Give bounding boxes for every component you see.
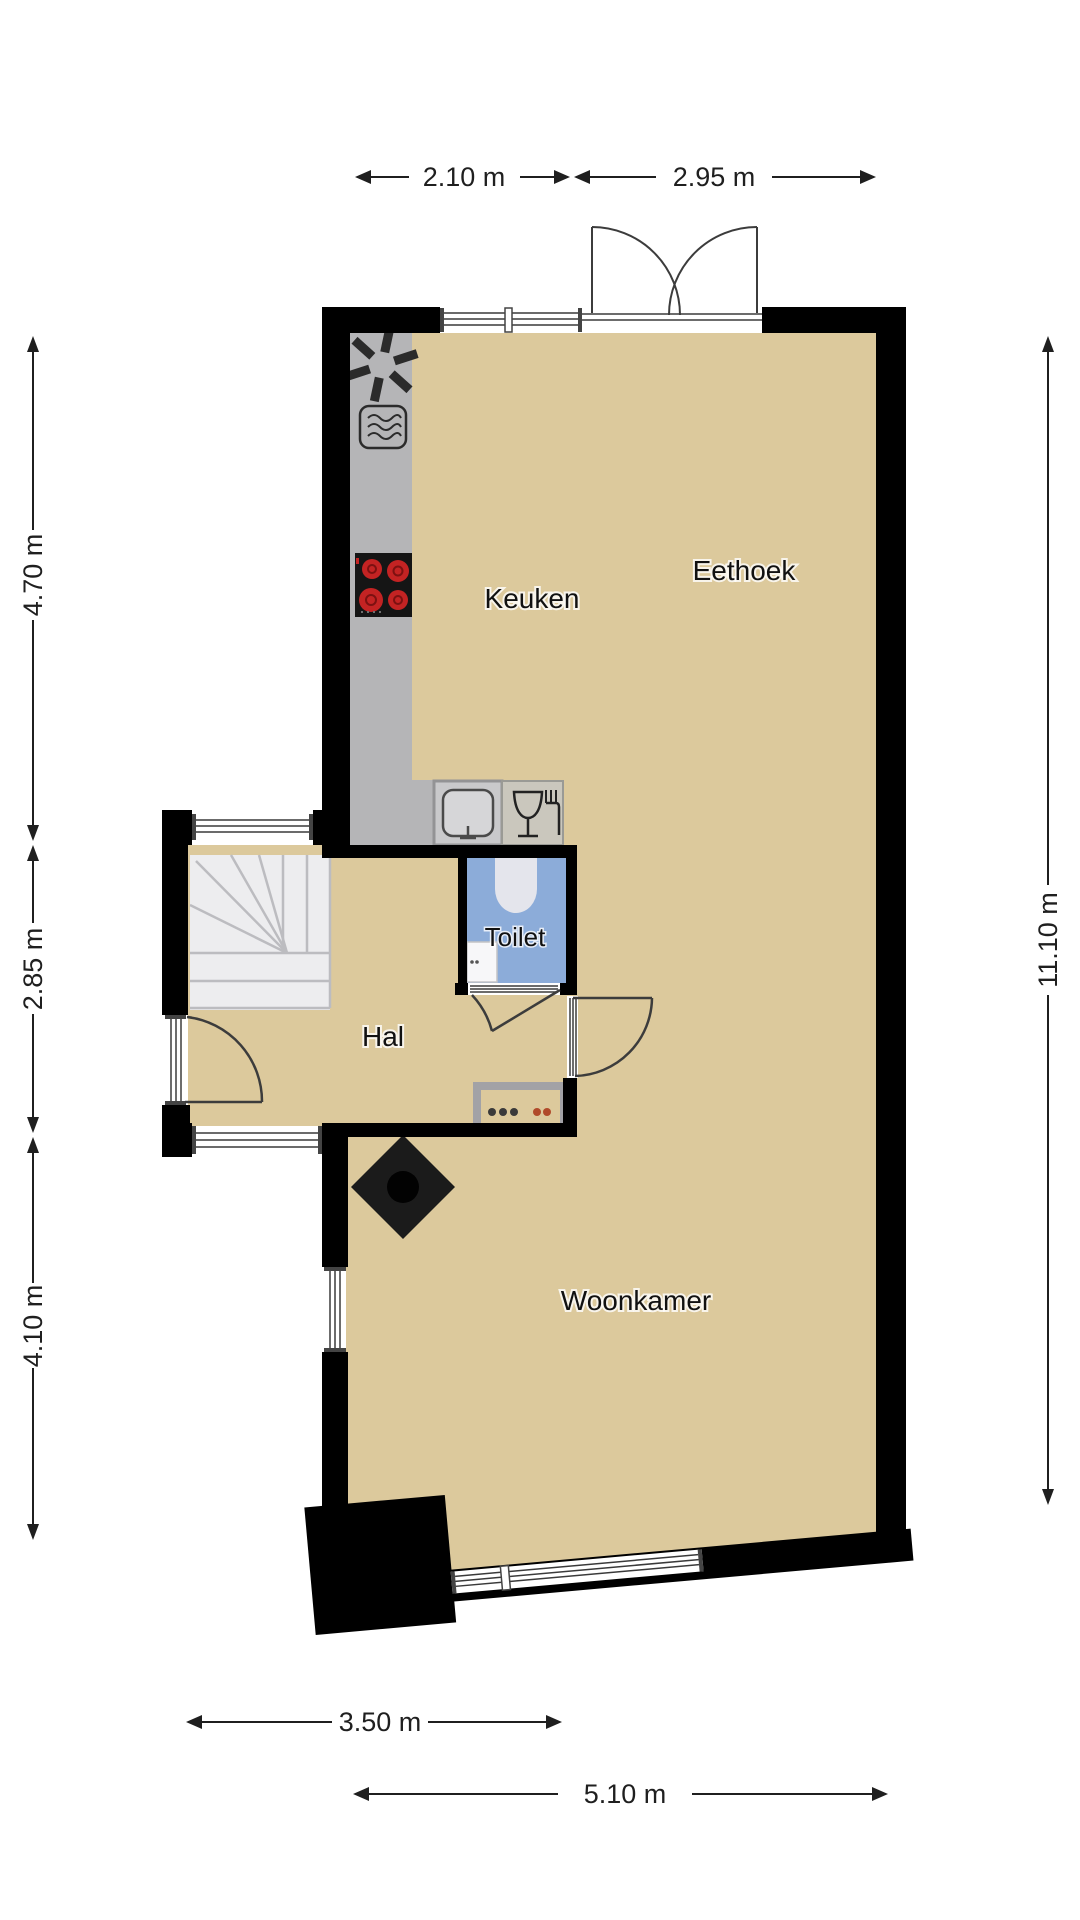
arrow-left	[186, 1715, 202, 1729]
glass-fork-icon	[502, 781, 563, 845]
burner	[362, 559, 382, 579]
label-woonkamer: Woonkamer	[561, 1285, 711, 1316]
wall-hall-south	[322, 1123, 577, 1137]
wall-door-block	[563, 1078, 577, 1137]
wall-east	[876, 333, 906, 1538]
wall-hall-west-upper	[162, 845, 188, 1015]
dim-bottom-hall: 3.50 m	[339, 1707, 422, 1737]
arrow-left	[574, 170, 590, 184]
window-post	[578, 308, 582, 332]
cooktop-indicator	[356, 558, 359, 564]
window-hall-north	[192, 814, 313, 840]
dim-top-right: 2.95 m	[673, 162, 756, 192]
wall-south-west-corner	[304, 1495, 456, 1635]
kitchen-sink	[434, 781, 502, 845]
arrow-right	[872, 1787, 888, 1801]
dim-top-left: 2.10 m	[423, 162, 506, 192]
window-post	[324, 1267, 346, 1271]
label-eethoek: Eethoek	[693, 555, 797, 586]
radiator-dot	[499, 1108, 507, 1116]
label-toilet: Toilet	[485, 922, 546, 952]
window-mullion	[500, 1566, 510, 1591]
door-post	[165, 1101, 186, 1105]
double-french-doors	[582, 227, 762, 333]
arrow-up	[1042, 336, 1054, 352]
wall-hall-north-left	[162, 810, 192, 845]
arrow-up	[27, 1137, 39, 1153]
wall-toilet-south-left	[455, 983, 468, 995]
arrow-right	[860, 170, 876, 184]
arrow-up	[27, 336, 39, 352]
basin-tap	[470, 960, 474, 964]
wall-kitchen-west	[322, 333, 350, 845]
stairs-body	[190, 855, 330, 1010]
radiator-dot	[488, 1108, 496, 1116]
dim-right-side: 11.10 m	[1033, 892, 1063, 988]
arrow-down	[27, 1524, 39, 1540]
wall-top-right	[762, 307, 906, 333]
dim-left-middle: 2.85 m	[18, 928, 48, 1011]
radiator-dot	[510, 1108, 518, 1116]
window-kitchen-north	[440, 308, 582, 332]
wall-top-left	[322, 307, 440, 333]
dim-left-top: 4.70 m	[18, 534, 48, 617]
window-post	[440, 308, 444, 332]
window-post	[192, 1126, 196, 1154]
chimney-flue	[387, 1171, 419, 1203]
radiator-dot-red	[533, 1108, 541, 1116]
radiator-frame	[473, 1082, 568, 1090]
window-living-west	[324, 1267, 346, 1352]
arrow-left	[355, 170, 371, 184]
basin-tap	[475, 960, 479, 964]
arrow-down	[27, 825, 39, 841]
floorplan-drawing: 2.10 m 2.95 m 4.70 m 2.85 m 4.10 m 11.10…	[0, 0, 1080, 1920]
label-keuken: Keuken	[485, 583, 580, 614]
label-hal: Hal	[362, 1021, 404, 1052]
window-hall-south	[192, 1126, 322, 1154]
door-swing-arc	[669, 227, 757, 315]
wall-living-west-upper	[322, 1135, 348, 1267]
arrow-right	[554, 170, 570, 184]
radiator-dot-red	[543, 1108, 551, 1116]
door-post	[165, 1015, 186, 1019]
arrow-down	[27, 1117, 39, 1133]
window-glass	[192, 814, 313, 840]
fan-blade	[374, 378, 379, 401]
window-mullion	[505, 308, 512, 332]
window-post	[318, 1126, 322, 1154]
radiator-frame	[473, 1082, 481, 1127]
arrow-left	[353, 1787, 369, 1801]
wall-toilet-east	[566, 845, 577, 995]
burner	[359, 588, 383, 612]
door-swing-arc	[592, 227, 680, 315]
wall-hall-north-right	[313, 810, 335, 845]
winder-staircase	[190, 855, 330, 1010]
window-post	[324, 1348, 346, 1352]
window-post	[309, 814, 313, 840]
cooktop-icon	[355, 553, 412, 617]
burner	[387, 560, 409, 582]
wall-toilet-west	[458, 858, 467, 983]
window-post	[192, 814, 196, 840]
wall-hall-south-corner	[162, 1123, 192, 1157]
arrow-up	[27, 845, 39, 861]
dim-bottom-living: 5.10 m	[584, 1779, 667, 1809]
arrow-down	[1042, 1489, 1054, 1505]
floorplan-page: 2.10 m 2.95 m 4.70 m 2.85 m 4.10 m 11.10…	[0, 0, 1080, 1920]
arrow-right	[546, 1715, 562, 1729]
toilet-bowl	[495, 851, 537, 913]
wall-kitchen-south	[322, 845, 566, 858]
dim-left-bottom: 4.10 m	[18, 1285, 48, 1368]
burner	[388, 590, 408, 610]
